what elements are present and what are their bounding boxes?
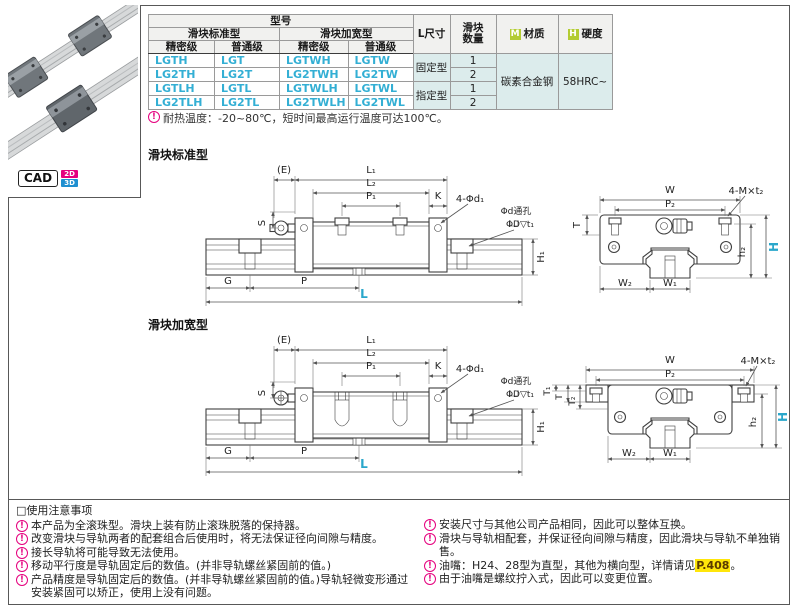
note-item: ! 改变滑块与导轨两者的配套组合后使用时，将无法保证径向间隙与精度。 xyxy=(16,532,414,546)
note-item: ! 本产品为全滚珠型。滑块上装有防止滚珠脱落的保持器。 xyxy=(16,519,414,533)
model-link[interactable]: LGTWLH xyxy=(280,82,349,96)
section-title-widened: 滑块加宽型 xyxy=(148,316,208,333)
dim-label-g: G xyxy=(224,276,232,287)
dim-label-p2: P₂ xyxy=(665,199,675,210)
material-badge: M xyxy=(510,29,521,40)
model-link[interactable]: LG2TLH xyxy=(149,96,215,110)
model-link[interactable]: LG2TWL xyxy=(348,96,413,110)
model-link[interactable]: LG2TWLH xyxy=(280,96,349,110)
dim-label-h2: h₂ xyxy=(748,417,759,427)
note-text: 接长导轨将可能导致无法使用。 xyxy=(31,546,185,560)
usage-notes-title: □使用注意事项 xyxy=(16,504,414,518)
model-link[interactable]: LGTL xyxy=(215,82,280,96)
drawing-widened: (E) L₁ L₂ P₁ K 4-Φd₁ S Φd通孔 ΦD▽t₁ H₁ xyxy=(200,330,790,482)
dim-label-e: (E) xyxy=(277,335,291,346)
model-link[interactable]: LGTWH xyxy=(280,54,349,68)
model-link[interactable]: LGT xyxy=(215,54,280,68)
model-link[interactable]: LG2T xyxy=(215,68,280,82)
dim-label-s: S xyxy=(257,390,268,396)
dim-label-p: P xyxy=(301,446,307,457)
dim-label-l1: L₁ xyxy=(366,335,376,346)
dim-label-h: H xyxy=(767,242,781,252)
cad-label: CAD xyxy=(18,170,58,187)
dim-label-mt2: 4-M×t₂ xyxy=(729,186,764,197)
note-text: 安装尺寸与其他公司产品相同，因此可以整体互换。 xyxy=(439,518,692,532)
dim-label-h: H xyxy=(776,412,790,422)
note-text-suffix: 。 xyxy=(730,559,741,572)
col-header-material: M材质 xyxy=(496,15,558,54)
dim-label-k: K xyxy=(435,191,442,202)
side-view-slider xyxy=(274,388,447,442)
caution-icon: ! xyxy=(424,560,436,572)
notes-divider xyxy=(8,499,789,500)
note-text: 改变滑块与导轨两者的配套组合后使用时，将无法保证径向间隙与精度。 xyxy=(31,532,383,546)
model-link[interactable]: LG2TH xyxy=(149,68,215,82)
dim-label-t: T xyxy=(555,394,565,401)
dim-label-w: W xyxy=(665,185,675,196)
qty-cell: 1 xyxy=(450,82,496,96)
caution-icon: ! xyxy=(148,111,160,123)
dim-label-t1: T₁ xyxy=(543,386,553,396)
grease-nipple-icon xyxy=(656,218,692,234)
note-item: ! 安装尺寸与其他公司产品相同，因此可以整体互换。 xyxy=(424,518,786,532)
col-header-widened: 滑块加宽型 xyxy=(280,28,414,41)
caution-icon: ! xyxy=(424,519,436,531)
col-header-hardness: H硬度 xyxy=(558,15,612,54)
col-header-normal: 普通级 xyxy=(215,41,280,54)
model-link[interactable]: LGTH xyxy=(149,54,215,68)
col-header-lsize: L尺寸 xyxy=(413,15,450,54)
caution-icon: ! xyxy=(16,560,28,572)
lsize-cell: 指定型 xyxy=(413,82,450,110)
note-item: ! 移动平行度是导轨固定后的数值。(并非导轨螺丝紧固前的值。) xyxy=(16,559,414,573)
rails-group xyxy=(8,5,138,165)
dim-label-p1: P₁ xyxy=(366,361,376,372)
dim-label-s: S xyxy=(257,220,268,226)
dim-label-l: L xyxy=(360,457,368,471)
qty-cell: 1 xyxy=(450,54,496,68)
note-text: 产品精度是导轨固定后的数值。(并非导轨螺丝紧固前的值。)导轨轻微变形通过安装紧固… xyxy=(31,573,414,600)
table-row: LGTH LGT LGTWH LGTW 固定型 1 碳素合金钢 58HRC~ xyxy=(149,54,613,68)
usage-notes-right: ! 安装尺寸与其他公司产品相同，因此可以整体互换。 ! 滑块与导轨相配套，并保证… xyxy=(424,518,786,586)
dim-label-p: P xyxy=(301,276,307,287)
dim-label-w: W xyxy=(665,355,675,366)
cad-2d-chip[interactable]: 2D xyxy=(61,170,78,178)
page-reference-link[interactable]: P.408 xyxy=(695,559,730,572)
caution-icon: ! xyxy=(16,574,28,586)
dim-label-counterbore: ΦD▽t₁ xyxy=(506,390,534,400)
rail-cross-section xyxy=(646,250,694,278)
rail-cross-section xyxy=(646,420,694,448)
dim-label-w2: W₂ xyxy=(618,278,632,289)
col-header-model: 型号 xyxy=(149,15,414,28)
note-item: ! 油嘴：H24、28型为直型，其他为横向型，详情请见P.408。 xyxy=(424,559,786,573)
dim-label-l: L xyxy=(360,287,368,301)
cad-badge: CAD 2D 3D xyxy=(18,170,78,187)
dim-label-t: T xyxy=(572,221,583,229)
col-header-precision: 精密级 xyxy=(149,41,215,54)
dim-label-d1: 4-Φd₁ xyxy=(456,364,484,375)
dim-label-w1: W₁ xyxy=(663,278,677,289)
note-text: 滑块与导轨相配套，并保证径向间隙与精度，因此滑块与导轨不单独销售。 xyxy=(439,532,786,559)
dim-label-l2: L₂ xyxy=(366,178,376,189)
dim-label-w2: W₂ xyxy=(622,448,636,459)
end-view-block xyxy=(586,385,754,448)
model-link[interactable]: LG2TWH xyxy=(280,68,349,82)
dim-label-mt2: 4-M×t₂ xyxy=(741,356,776,367)
col-header-standard: 滑块标准型 xyxy=(149,28,280,41)
side-view-slider xyxy=(270,218,447,272)
dim-label-w1: W₁ xyxy=(663,448,677,459)
dim-label-through-hole: Φd通孔 xyxy=(501,376,532,387)
material-cell: 碳素合金钢 xyxy=(496,54,558,110)
col-header-qty: 滑块 数量 xyxy=(450,15,496,54)
hardness-badge: H xyxy=(568,29,579,40)
dim-label-h1: H₁ xyxy=(536,421,547,433)
note-item: ! 接长导轨将可能导致无法使用。 xyxy=(16,546,414,560)
qty-cell: 2 xyxy=(450,68,496,82)
note-text: 本产品为全滚珠型。滑块上装有防止滚珠脱落的保持器。 xyxy=(31,519,306,533)
spec-table: 型号 L尺寸 滑块 数量 M材质 H硬度 滑块标准型 滑块加宽型 精密级 普通级… xyxy=(148,14,613,110)
dim-label-p1: P₁ xyxy=(366,191,376,202)
caution-icon: ! xyxy=(424,533,436,545)
dim-label-counterbore: ΦD▽t₁ xyxy=(506,220,534,230)
cad-3d-chip[interactable]: 3D xyxy=(61,179,78,187)
lsize-cell: 固定型 xyxy=(413,54,450,82)
catalog-page: CAD 2D 3D 型号 L尺寸 滑块 数量 M材质 H硬度 滑块标准型 滑块加… xyxy=(0,0,800,608)
note-item: ! 由于油嘴是螺纹拧入式，因此可以变更位置。 xyxy=(424,572,786,586)
end-view-block xyxy=(600,215,740,278)
model-link[interactable]: LGTW xyxy=(348,54,413,68)
caution-icon: ! xyxy=(16,520,28,532)
table-footnote: ! 耐热温度：-20~80℃，短时间最高运行温度可达100℃。 xyxy=(148,110,448,126)
footnote-text: 耐热温度：-20~80℃，短时间最高运行温度可达100℃。 xyxy=(163,110,448,126)
dim-label-h2: h₂ xyxy=(737,247,748,257)
dim-label-g: G xyxy=(224,446,232,457)
grease-nipple-icon xyxy=(656,388,692,404)
dim-label-k: K xyxy=(435,361,442,372)
note-text: 移动平行度是导轨固定后的数值。(并非导轨螺丝紧固前的值。) xyxy=(31,559,331,573)
dim-label-d1: 4-Φd₁ xyxy=(456,194,484,205)
model-link[interactable]: LGTLH xyxy=(149,82,215,96)
note-text-pre: 油嘴：H24、28型为直型，其他为横向型，详情请见 xyxy=(439,559,695,572)
section-title-standard: 滑块标准型 xyxy=(148,146,208,163)
note-item: ! 滑块与导轨相配套，并保证径向间隙与精度，因此滑块与导轨不单独销售。 xyxy=(424,532,786,559)
note-text: 油嘴：H24、28型为直型，其他为横向型，详情请见P.408。 xyxy=(439,559,741,573)
caution-icon: ! xyxy=(16,533,28,545)
caution-icon: ! xyxy=(16,547,28,559)
drawing-standard: (E) L₁ L₂ P₁ K 4-Φd₁ S Φd通孔 ΦD▽t₁ H₁ xyxy=(200,160,790,312)
dim-label-l2: L₂ xyxy=(366,348,376,359)
note-item: ! 产品精度是导轨固定后的数值。(并非导轨螺丝紧固前的值。)导轨轻微变形通过安装… xyxy=(16,573,414,600)
dim-label-h1: H₁ xyxy=(536,251,547,263)
model-link[interactable]: LG2TL xyxy=(215,96,280,110)
dim-label-p2: P₂ xyxy=(665,369,675,380)
col-header-precision: 精密级 xyxy=(280,41,349,54)
usage-notes-left: □使用注意事项 ! 本产品为全滚珠型。滑块上装有防止滚珠脱落的保持器。 ! 改变… xyxy=(16,504,414,600)
dim-label-e: (E) xyxy=(277,165,291,176)
dim-label-l1: L₁ xyxy=(366,165,376,176)
hardness-cell: 58HRC~ xyxy=(558,54,612,110)
col-header-normal: 普通级 xyxy=(348,41,413,54)
dim-label-through-hole: Φd通孔 xyxy=(501,206,532,217)
model-link[interactable]: LGTWL xyxy=(348,82,413,96)
model-link[interactable]: LG2TW xyxy=(348,68,413,82)
product-photo xyxy=(8,5,138,165)
caution-icon: ! xyxy=(424,573,436,585)
qty-cell: 2 xyxy=(450,96,496,110)
dim-label-t2: T₂ xyxy=(568,396,578,406)
note-text: 由于油嘴是螺纹拧入式，因此可以变更位置。 xyxy=(439,572,659,586)
